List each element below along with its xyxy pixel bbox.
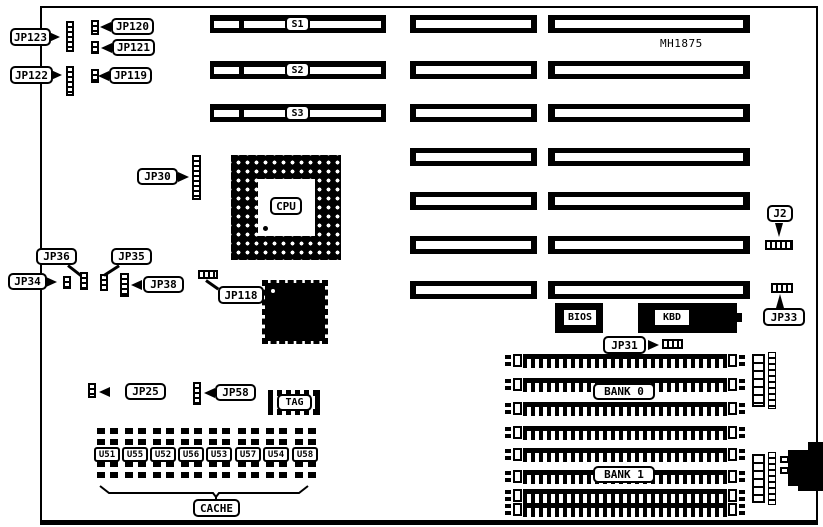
jumper-j2 [765, 240, 793, 250]
callout-tail [178, 172, 189, 182]
slot-label-s2: S2 [285, 62, 310, 78]
slot-right-4 [548, 148, 750, 166]
slot-middle-7 [410, 281, 537, 299]
slot-middle-1 [410, 15, 537, 33]
jumper-jp34 [63, 276, 71, 289]
slot-middle-5 [410, 192, 537, 210]
simm-socket-5 [505, 448, 745, 463]
cache-chip-label: U57 [235, 447, 261, 462]
jumper-label-jp36: JP36 [36, 248, 77, 265]
slot-right-6 [548, 236, 750, 254]
cache-chip-label: U55 [122, 447, 148, 462]
jumper-label-jp38: JP38 [143, 276, 184, 293]
callout-tail [99, 387, 110, 397]
connector-cells [752, 454, 765, 503]
chip-edge [268, 390, 273, 415]
slot-middle-6 [410, 236, 537, 254]
slot-right-2 [548, 61, 750, 79]
cache-chip-label: U52 [150, 447, 176, 462]
cpu-label: CPU [270, 197, 302, 215]
jumper-jp122 [66, 66, 74, 96]
cache-chip-u57: U57 [238, 428, 259, 483]
cpu-pin1-dot [263, 226, 268, 231]
keyboard-din-connector-tab [798, 485, 823, 491]
cache-label: CACHE [193, 499, 240, 517]
model-number-text: MH1875 [660, 37, 703, 50]
jumper-jp38 [120, 273, 129, 297]
bank0-label: BANK 0 [593, 383, 655, 400]
power-connector-2 [752, 452, 776, 505]
jumper-jp121 [91, 41, 99, 54]
jumper-label-jp123: JP123 [10, 28, 51, 46]
jumper-jp118 [198, 270, 218, 279]
jumper-label-jp119: JP119 [109, 67, 152, 84]
callout-tail [100, 22, 111, 32]
slot-middle-2 [410, 61, 537, 79]
jumper-label-jp33: JP33 [763, 308, 805, 326]
slot-middle-3 [410, 104, 537, 122]
simm-socket-7 [505, 489, 745, 504]
connector-pins [768, 452, 776, 505]
jumper-jp33 [771, 283, 793, 293]
slot-right-5 [548, 192, 750, 210]
slot-window [214, 110, 239, 117]
callout-tail [776, 294, 784, 308]
simm-socket-3 [505, 402, 745, 417]
slot-window [244, 67, 381, 74]
simm-socket-1 [505, 354, 745, 369]
jumper-label-jp25: JP25 [125, 383, 166, 400]
cache-chip-label: U54 [263, 447, 289, 462]
slot-right-1 [548, 15, 750, 33]
slot-middle-4 [410, 148, 537, 166]
jumper-label-jp120: JP120 [111, 18, 154, 35]
chip-edge [315, 390, 320, 415]
callout-tail [648, 340, 659, 350]
slot-window [244, 21, 381, 28]
slot-right-3 [548, 104, 750, 122]
cache-chip-u52: U52 [153, 428, 174, 483]
tag-label: TAG [277, 394, 312, 411]
simm-socket-4 [505, 426, 745, 441]
keyboard-din-connector [788, 450, 823, 486]
slot-label-s3: S3 [285, 105, 310, 121]
slot-label-s1: S1 [285, 16, 310, 32]
jumper-jp58 [193, 382, 201, 405]
cache-chip-label: U51 [94, 447, 120, 462]
jumper-jp120 [91, 20, 99, 35]
qfp-pin1-dot [271, 289, 275, 293]
callout-tail [204, 388, 215, 398]
jumper-jp25 [88, 383, 96, 398]
jumper-jp31 [662, 339, 683, 349]
kbd-label: KBD [655, 310, 689, 325]
kbd-chip-notch [737, 313, 742, 322]
cache-chip-u54: U54 [266, 428, 287, 483]
jumper-label-jp35: JP35 [111, 248, 152, 265]
cache-chip-u55: U55 [125, 428, 146, 483]
cache-chip-u56: U56 [181, 428, 202, 483]
slot-right-7 [548, 281, 750, 299]
qfp-chip-body [265, 283, 325, 341]
bank1-label: BANK 1 [593, 466, 655, 483]
qfp-chip [262, 280, 328, 344]
jumper-label-jp118: JP118 [218, 286, 264, 304]
connector-pins [768, 352, 776, 409]
cache-chip-label: U58 [292, 447, 318, 462]
cache-chip-label: U53 [206, 447, 232, 462]
callout-tail [98, 71, 109, 81]
cache-chip-u58: U58 [295, 428, 316, 483]
slot-window [244, 110, 381, 117]
callout-tail [131, 280, 142, 290]
jumper-label-jp58: JP58 [215, 384, 256, 401]
jumper-jp123 [66, 21, 74, 52]
motherboard-diagram: MH1875 S1 S2 S3 JP123 JP120 JP121 JP122 … [0, 0, 823, 527]
cache-chip-u53: U53 [209, 428, 230, 483]
jumper-label-j2: J2 [767, 205, 793, 222]
slot-window [214, 21, 239, 28]
din-connector-pin [780, 467, 789, 474]
slot-window [214, 67, 239, 74]
connector-cells [752, 354, 765, 407]
callout-tail [101, 43, 112, 53]
jumper-jp30 [192, 155, 201, 200]
jumper-label-jp30: JP30 [137, 168, 178, 185]
bios-label: BIOS [564, 310, 596, 325]
power-connector-1 [752, 352, 776, 409]
jumper-label-jp122: JP122 [10, 66, 53, 84]
simm-socket-8 [505, 503, 745, 518]
jumper-label-jp121: JP121 [112, 39, 155, 56]
callout-tail [775, 223, 783, 237]
jumper-label-jp34: JP34 [8, 273, 47, 290]
callout-tail [46, 277, 57, 287]
cache-chip-u51: U51 [97, 428, 118, 483]
jumper-label-jp31: JP31 [603, 336, 646, 354]
keyboard-din-connector-tab [808, 442, 823, 451]
cache-chip-label: U56 [178, 447, 204, 462]
din-connector-pin [780, 456, 789, 463]
